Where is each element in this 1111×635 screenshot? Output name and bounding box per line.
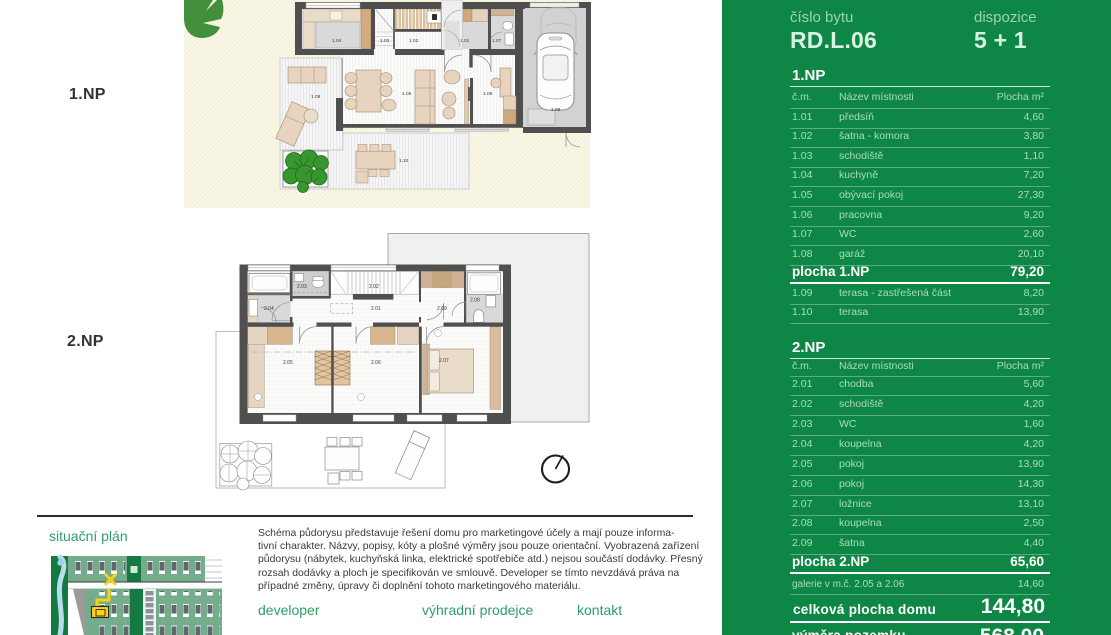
svg-text:1.08: 1.08	[551, 107, 561, 113]
svg-text:1.05: 1.05	[402, 91, 412, 97]
svg-text:2.02: 2.02	[369, 284, 379, 290]
svg-text:2.09: 2.09	[437, 306, 447, 312]
svg-text:1.01: 1.01	[460, 38, 470, 44]
svg-text:2.06: 2.06	[371, 360, 381, 366]
svg-text:1.06: 1.06	[483, 91, 493, 97]
svg-text:1.09: 1.09	[311, 94, 321, 100]
svg-text:2.03: 2.03	[297, 284, 307, 290]
svg-text:2.04: 2.04	[264, 306, 274, 312]
svg-text:1.04: 1.04	[332, 38, 342, 44]
svg-text:2.05: 2.05	[283, 360, 293, 366]
svg-text:2.08: 2.08	[470, 298, 480, 304]
svg-text:2.01: 2.01	[371, 306, 381, 312]
svg-text:2.07: 2.07	[439, 358, 449, 364]
svg-text:1.07: 1.07	[492, 38, 502, 44]
svg-text:1.03: 1.03	[380, 38, 390, 44]
svg-text:1.02: 1.02	[409, 38, 419, 44]
svg-text:1.10: 1.10	[399, 158, 409, 164]
